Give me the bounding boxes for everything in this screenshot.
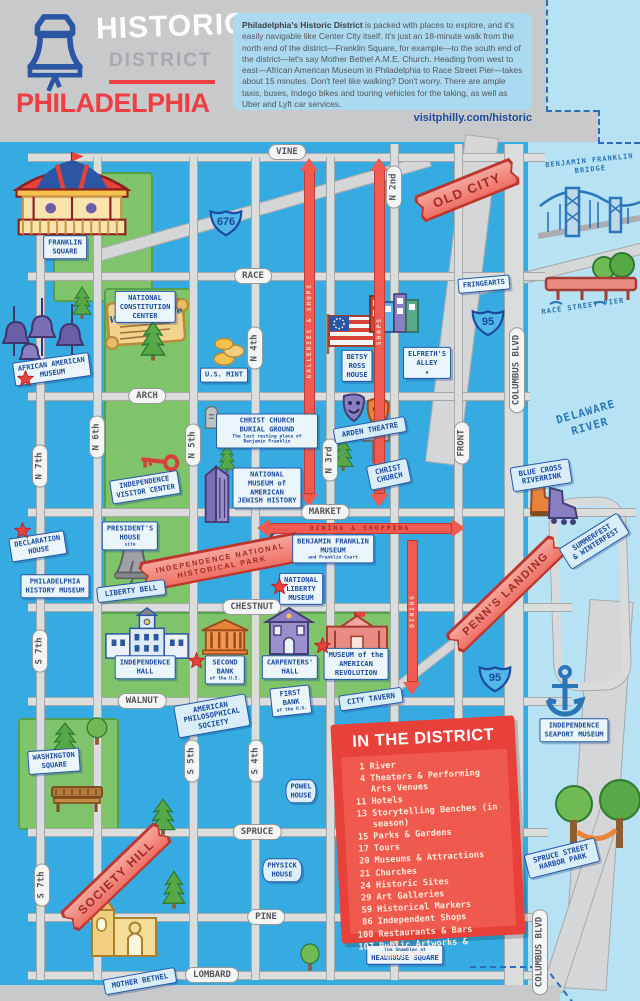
sign-powel-house: POWELHOUSE bbox=[285, 779, 316, 803]
street-label-s-5th: S 5th bbox=[184, 739, 200, 782]
logo-word-district: DISTRICT bbox=[109, 50, 213, 72]
round-tree-icon bbox=[84, 716, 110, 746]
legend-item-count: 21 bbox=[350, 869, 371, 880]
race-street-pier-icon bbox=[544, 252, 640, 308]
street-label-columbus-blvd: COLUMBUS BLVD bbox=[509, 327, 525, 413]
sign-museum-american-revolution: MUSEUM of theAMERICANREVOLUTION bbox=[324, 648, 389, 680]
pine-tree-icon bbox=[162, 870, 186, 910]
arrow-dining-label: DINING bbox=[409, 594, 416, 628]
street bbox=[93, 157, 102, 980]
map-border-dash bbox=[598, 110, 600, 143]
legend-item-label: Tours bbox=[374, 843, 401, 855]
sign-benjamin-franklin-museum: BENJAMIN FRANKLINMUSEUMand Franklin Cour… bbox=[292, 534, 374, 563]
street-label-n-7th: N 7th bbox=[32, 444, 48, 487]
sign-franklin-square: FRANKLINSQUARE bbox=[43, 235, 87, 259]
legend-item-label: Hotels bbox=[371, 795, 403, 807]
arrow-galleries-and-shops-label: GALLERIES & SHOPS bbox=[306, 283, 313, 378]
sign-national-constitution-center: NATIONALCONSTITUTIONCENTER bbox=[115, 291, 176, 323]
legend-item-count: 29 bbox=[351, 893, 372, 904]
street-label-front: FRONT bbox=[454, 421, 470, 464]
sign-second-bank: SECONDBANKof the U.S. bbox=[205, 655, 245, 684]
street-label-spruce: SPRUCE bbox=[233, 824, 282, 840]
arrow-dining-and-shopping-head-left bbox=[257, 519, 270, 537]
sign-independence-seaport-museum: INDEPENDENCESEAPORT MUSEUM bbox=[539, 718, 608, 742]
legend-item-count: 15 bbox=[348, 832, 369, 843]
sign-independence-hall: INDEPENDENCEHALL bbox=[115, 655, 176, 679]
legend-item-count: 4 bbox=[345, 774, 366, 796]
street-label-walnut: WALNUT bbox=[118, 693, 167, 709]
pine-tree-icon bbox=[140, 320, 166, 362]
marker-star-icon bbox=[271, 578, 288, 595]
street-label-race: RACE bbox=[234, 268, 272, 284]
street-label-lombard: LOMBARD bbox=[185, 967, 239, 983]
bottom-shore-band bbox=[0, 985, 560, 1001]
sign-carpenters-hall: CARPENTERS'HALL bbox=[262, 655, 318, 679]
sign-jewish-history-museum: NATIONALMUSEUM ofAMERICANJEWISH HISTORY bbox=[232, 468, 301, 509]
arrow-dining-and-shopping: DINING & SHOPPING bbox=[269, 524, 451, 533]
intro-lead: Philadelphia's Historic District bbox=[242, 20, 363, 30]
map-border-dash bbox=[546, 0, 548, 112]
map-border-dash bbox=[546, 110, 599, 112]
arrow-galleries-and-shops-head-up bbox=[300, 158, 318, 171]
second-bank-icon bbox=[200, 618, 250, 656]
logo-word-philadelphia: PHILADELPHIA bbox=[16, 88, 210, 119]
street-label-columbus-blvd: COLUMBUS BLVD bbox=[532, 909, 548, 995]
logo-word-historic: HISTORIC bbox=[95, 7, 247, 46]
arrow-dining-head-down bbox=[403, 682, 421, 695]
independence-hall-icon bbox=[104, 606, 190, 660]
river-corner-step bbox=[598, 108, 640, 144]
coins-icon bbox=[212, 336, 246, 366]
street-label-market: MARKET bbox=[301, 504, 350, 520]
street-label-s-7th: S 7th bbox=[32, 629, 48, 672]
marker-star-icon bbox=[17, 370, 34, 387]
logo-divider bbox=[109, 80, 215, 84]
street-label-s-4th: S 4th bbox=[248, 739, 264, 782]
legend-panel: 1River4Theaters & Performing Arts Venues… bbox=[341, 749, 516, 934]
i676-shield-number: 676 bbox=[209, 207, 243, 237]
i95-shield-icon: 95 bbox=[471, 307, 505, 337]
arrow-shops-head-up bbox=[370, 158, 388, 171]
i95-shield-number: 95 bbox=[471, 307, 505, 337]
marker-star-icon bbox=[188, 652, 205, 669]
legend-item-count: 86 bbox=[353, 917, 374, 928]
visitphilly-url: visitphilly.com/historic bbox=[233, 112, 532, 124]
street-label-n-3rd: N 3rd bbox=[322, 438, 338, 481]
pine-tree-icon bbox=[72, 286, 92, 320]
franklin-bridge-icon bbox=[538, 172, 640, 260]
sign-us-mint: U.S. MINT bbox=[200, 368, 248, 383]
round-tree-icon bbox=[298, 942, 322, 972]
legend-item-label: Churches bbox=[375, 866, 417, 879]
arrow-dining: DINING bbox=[408, 541, 417, 681]
legend-item-count: 24 bbox=[351, 881, 372, 892]
legend-item-label: River bbox=[369, 761, 396, 773]
street-label-vine: VINE bbox=[268, 144, 306, 160]
street-label-n-5th: N 5th bbox=[185, 423, 201, 466]
river-corner-top bbox=[546, 0, 640, 111]
legend-item-count: 13 bbox=[347, 809, 368, 831]
marker-star-icon bbox=[314, 637, 331, 654]
sign-christ-church-burial-ground: CHRIST CHURCHBURIAL GROUNDThe last resti… bbox=[216, 414, 318, 449]
arrow-dining-and-shopping-head-right bbox=[452, 519, 465, 537]
sign-washington-square: WASHINGTONSQUARE bbox=[27, 747, 81, 774]
street bbox=[326, 157, 335, 980]
liberty-bell-logo-icon bbox=[18, 6, 92, 98]
street-label-chestnut: CHESTNUT bbox=[222, 599, 281, 615]
bench-icon bbox=[48, 782, 106, 814]
street-label-s-7th: S 7th bbox=[34, 863, 50, 906]
legend-item-count: 17 bbox=[349, 844, 370, 855]
sign-presidents-house: PRESIDENT'SHOUSEsite bbox=[102, 521, 158, 550]
arrow-shops-head-down bbox=[370, 494, 388, 507]
i95-shield-icon: 95 bbox=[478, 663, 512, 693]
i95-shield-number: 95 bbox=[478, 663, 512, 693]
arrow-shops: SHOPS bbox=[375, 169, 384, 493]
intro-paragraph: Philadelphia's Historic District is pack… bbox=[233, 13, 532, 110]
in-the-district-legend: IN THE DISTRICT 1River4Theaters & Perfor… bbox=[330, 715, 525, 943]
legend-item-count: 20 bbox=[349, 856, 370, 867]
street-label-n-2nd: N 2nd bbox=[386, 165, 402, 208]
legend-item-count: 1 bbox=[344, 762, 365, 773]
map-border-dash bbox=[598, 142, 640, 144]
legend-item-count: 100 bbox=[353, 930, 374, 941]
street-label-pine: PINE bbox=[247, 909, 285, 925]
sign-elfreths-alley: ELFRETH'SALLEY★ bbox=[403, 347, 451, 379]
i676-shield-icon: 676 bbox=[209, 207, 243, 237]
historic-district-map-poster: HISTORIC DISTRICT PHILADELPHIA Philadelp… bbox=[0, 0, 640, 1001]
intro-body: is packed with places to explore, and it… bbox=[242, 20, 522, 109]
street-label-n-6th: N 6th bbox=[89, 415, 105, 458]
legend-title: IN THE DISTRICT bbox=[335, 725, 512, 753]
legend-item-count: 59 bbox=[352, 905, 373, 916]
arrow-dining-and-shopping-label: DINING & SHOPPING bbox=[310, 524, 411, 532]
sign-first-bank: FIRSTBANKof the U.S. bbox=[269, 684, 312, 717]
sign-physick-house: PHYSICKHOUSE bbox=[262, 858, 302, 882]
anchor-icon bbox=[542, 664, 588, 722]
street-label-arch: ARCH bbox=[128, 388, 166, 404]
arrow-shops-label: SHOPS bbox=[376, 317, 383, 345]
marker-star-icon bbox=[14, 522, 31, 539]
sign-betsy-ross-house: BETSYROSSHOUSE bbox=[341, 350, 372, 382]
street-label-n-4th: N 4th bbox=[247, 326, 263, 369]
legend-item-count: 107 bbox=[354, 942, 375, 964]
sign-philadelphia-history-museum: PHILADELPHIAHISTORY MUSEUM bbox=[20, 574, 89, 598]
legend-item-count: 11 bbox=[346, 797, 367, 808]
